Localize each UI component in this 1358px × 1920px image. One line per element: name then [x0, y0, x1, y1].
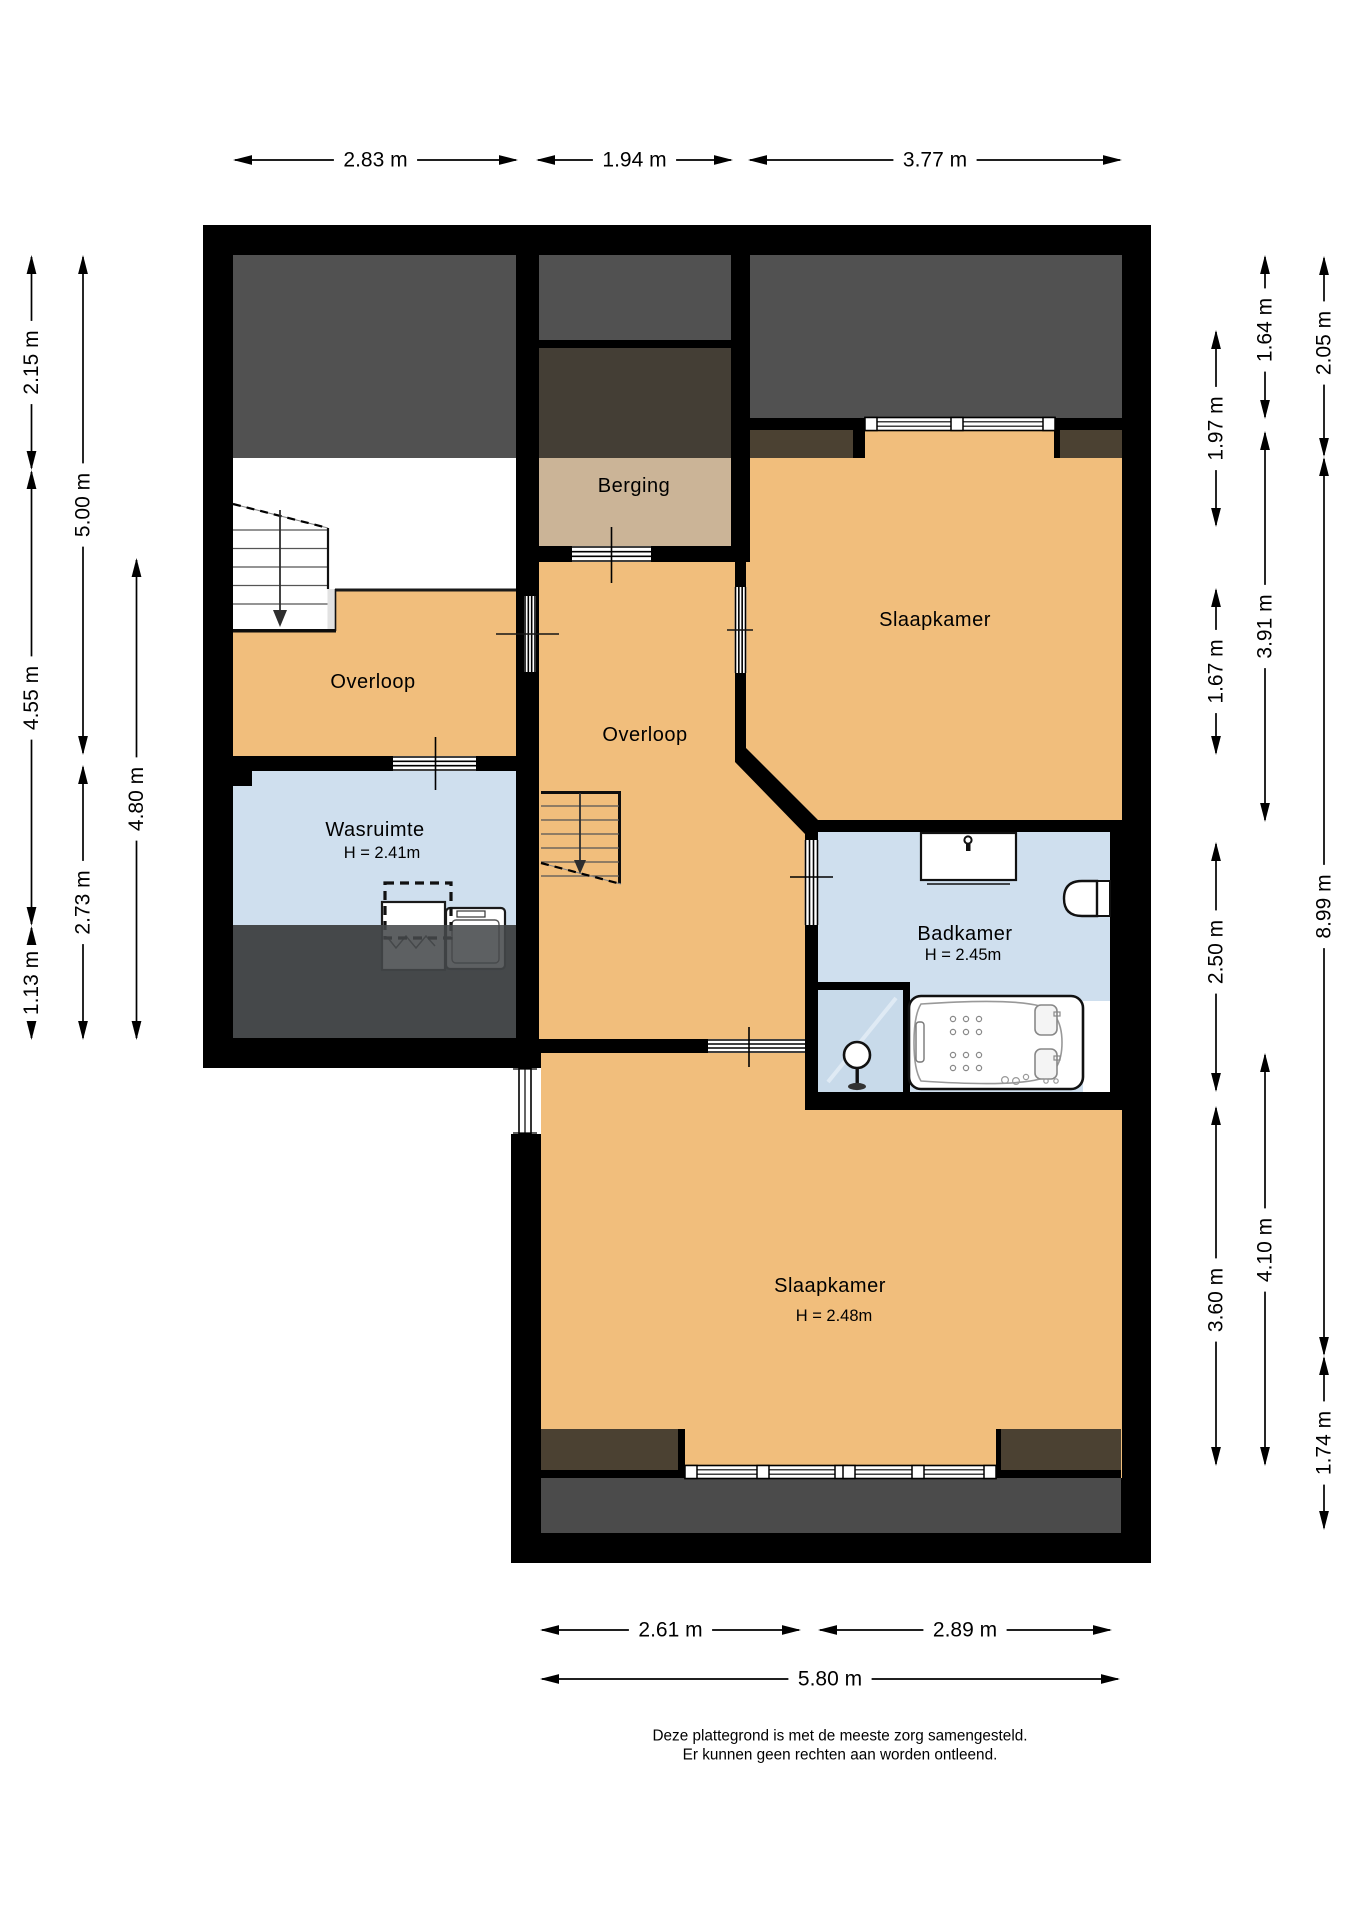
svg-text:2.50 m: 2.50 m — [1205, 920, 1228, 984]
svg-text:3.60 m: 3.60 m — [1205, 1268, 1228, 1332]
svg-text:Deze plattegrond is met de mee: Deze plattegrond is met de meeste zorg s… — [653, 1728, 1028, 1745]
svg-text:1.13 m: 1.13 m — [20, 951, 43, 1015]
svg-text:8.99 m: 8.99 m — [1313, 874, 1336, 938]
svg-text:2.05 m: 2.05 m — [1313, 311, 1336, 375]
svg-text:Er kunnen geen rechten aan wor: Er kunnen geen rechten aan worden ontlee… — [683, 1747, 998, 1764]
svg-text:H = 2.48m: H = 2.48m — [796, 1307, 873, 1325]
svg-text:1.97 m: 1.97 m — [1205, 396, 1228, 460]
svg-text:1.94 m: 1.94 m — [602, 149, 666, 172]
svg-text:Slaapkamer: Slaapkamer — [774, 1275, 886, 1297]
svg-text:3.91 m: 3.91 m — [1254, 594, 1277, 658]
svg-text:2.89 m: 2.89 m — [933, 1619, 997, 1642]
svg-text:4.80 m: 4.80 m — [125, 767, 148, 831]
svg-text:4.10 m: 4.10 m — [1254, 1218, 1277, 1282]
svg-text:Slaapkamer: Slaapkamer — [879, 609, 991, 631]
svg-text:H = 2.41m: H = 2.41m — [344, 844, 421, 862]
svg-text:Wasruimte: Wasruimte — [325, 819, 424, 841]
svg-text:2.73 m: 2.73 m — [72, 870, 95, 934]
svg-text:Badkamer: Badkamer — [917, 923, 1012, 945]
svg-text:1.74 m: 1.74 m — [1313, 1411, 1336, 1475]
svg-text:2.83 m: 2.83 m — [343, 149, 407, 172]
svg-text:5.00 m: 5.00 m — [72, 473, 95, 537]
svg-text:5.80 m: 5.80 m — [798, 1668, 862, 1691]
svg-text:1.64 m: 1.64 m — [1254, 298, 1277, 362]
svg-text:1.67 m: 1.67 m — [1205, 639, 1228, 703]
svg-text:2.61 m: 2.61 m — [638, 1619, 702, 1642]
svg-text:Berging: Berging — [598, 475, 670, 497]
svg-text:Overloop: Overloop — [330, 671, 415, 693]
svg-text:3.77 m: 3.77 m — [903, 149, 967, 172]
svg-text:H = 2.45m: H = 2.45m — [925, 946, 1002, 964]
svg-text:4.55 m: 4.55 m — [20, 666, 43, 730]
svg-text:Overloop: Overloop — [602, 724, 687, 746]
svg-text:2.15 m: 2.15 m — [20, 330, 43, 394]
